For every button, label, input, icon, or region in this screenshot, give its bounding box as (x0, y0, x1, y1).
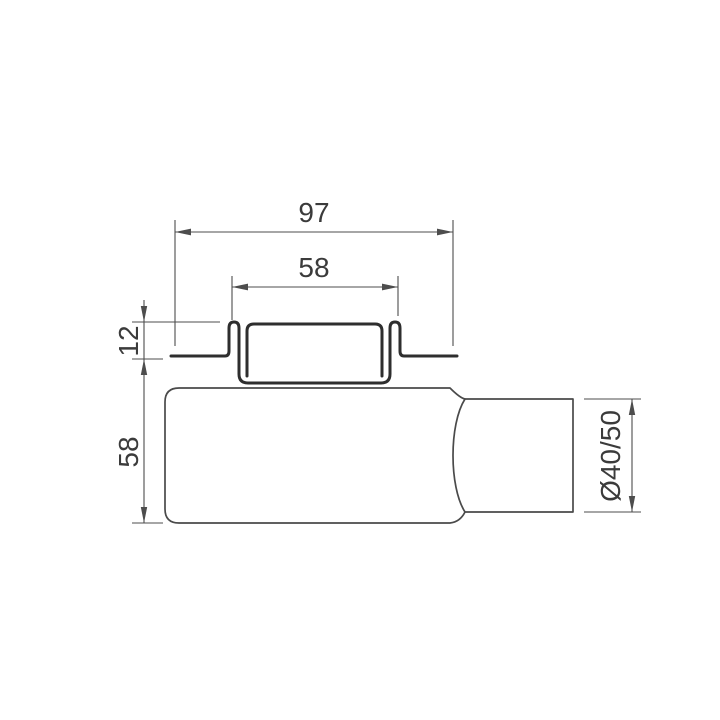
dim-arrow-down (629, 496, 635, 512)
dim-arrow-right (382, 284, 398, 291)
outlet-pipe-arc (453, 399, 465, 512)
dim-arrow-left (175, 229, 191, 236)
dim-grate-width-label: 58 (298, 252, 329, 283)
trap-body-outline (165, 388, 573, 523)
trap-body (165, 388, 573, 523)
dim-left-column: 12 58 (113, 300, 220, 523)
dim-arrow-up (629, 399, 635, 415)
technical-drawing: 97 58 12 58 (0, 0, 720, 720)
dim-body-height-label: 58 (113, 436, 144, 467)
dim-arrow-left (232, 284, 248, 291)
dim-arrow-down (141, 507, 147, 523)
dim-outlet-diameter-label: Ø40/50 (595, 410, 626, 502)
dim-grate-width: 58 (232, 252, 398, 320)
flange-cap-outline (247, 324, 382, 376)
dim-outlet-diameter: Ø40/50 (584, 399, 641, 512)
dim-arrow-down (141, 306, 147, 322)
drawing-canvas: 97 58 12 58 (0, 0, 720, 720)
dim-arrow-up (141, 359, 147, 375)
dim-overall-width-label: 97 (298, 197, 329, 228)
flange-frame-outline (171, 322, 457, 383)
dim-arrow-right (437, 229, 453, 236)
flange-profile (171, 322, 457, 383)
dim-flange-height-label: 12 (113, 325, 144, 356)
